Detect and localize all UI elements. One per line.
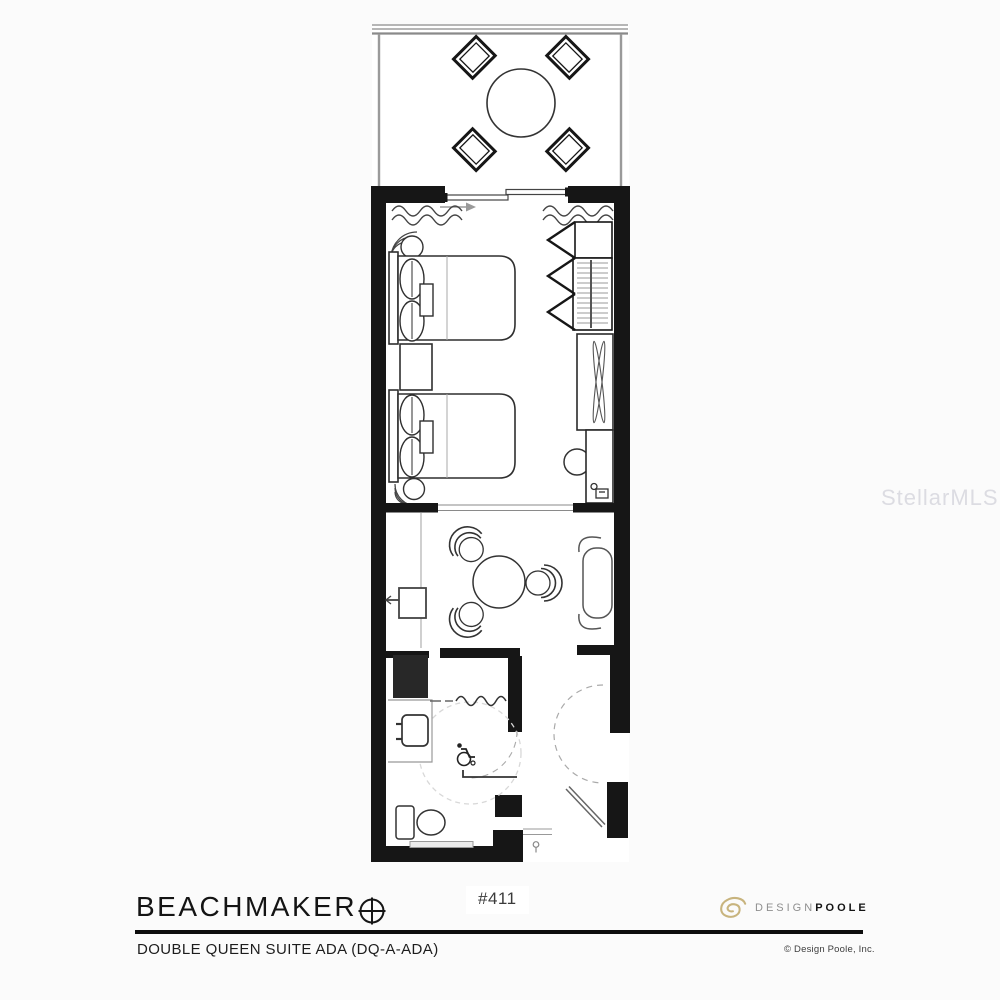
toilet-bowl xyxy=(417,810,445,835)
sitting-table xyxy=(473,556,525,608)
sliding-door-panel xyxy=(506,190,568,195)
logo-word-poole: POOLE xyxy=(815,902,869,914)
tv-console xyxy=(577,334,613,430)
entry-wall-right xyxy=(610,648,630,733)
title-divider-line xyxy=(135,930,863,934)
design-poole-logo: DESIGNPOOLE xyxy=(716,894,869,921)
north-compass-icon xyxy=(356,895,388,927)
grab-bar xyxy=(410,842,473,848)
design-poole-logo-icon xyxy=(716,894,748,921)
queen-bed-2 xyxy=(389,390,515,482)
logo-wordmark: DESIGNPOOLE xyxy=(755,902,869,914)
closet-wardrobe xyxy=(573,258,612,330)
headboard xyxy=(389,390,398,482)
wall-bottom xyxy=(371,846,523,862)
vanity-sink xyxy=(388,700,432,762)
plan-subtitle: DOUBLE QUEEN SUITE ADA (DQ-A-ADA) xyxy=(137,941,439,958)
chase xyxy=(393,655,428,698)
nightstand xyxy=(400,344,432,390)
queen-bed-1 xyxy=(389,252,515,344)
sliding-door-panel xyxy=(445,195,508,200)
copyright-label: © Design Poole, Inc. xyxy=(784,944,875,955)
wall-right xyxy=(614,202,630,648)
plan-title: BEACHMAKER xyxy=(136,891,357,923)
logo-word-design: DESIGN xyxy=(755,902,815,914)
headboard xyxy=(389,252,398,344)
bath-entry-partition xyxy=(508,656,522,732)
patio-table xyxy=(487,69,555,137)
floor-plan-page: StellarMLS BEACHMAKER #411 DOUBLE QUEEN … xyxy=(0,0,1000,1000)
wall-left xyxy=(371,202,386,862)
toilet-tank xyxy=(396,806,414,839)
stellar-mls-watermark: StellarMLS xyxy=(881,485,999,511)
room-number-label: #411 xyxy=(466,886,529,914)
closet-shelf xyxy=(575,222,612,258)
floor-plan-drawing xyxy=(0,0,1000,1000)
